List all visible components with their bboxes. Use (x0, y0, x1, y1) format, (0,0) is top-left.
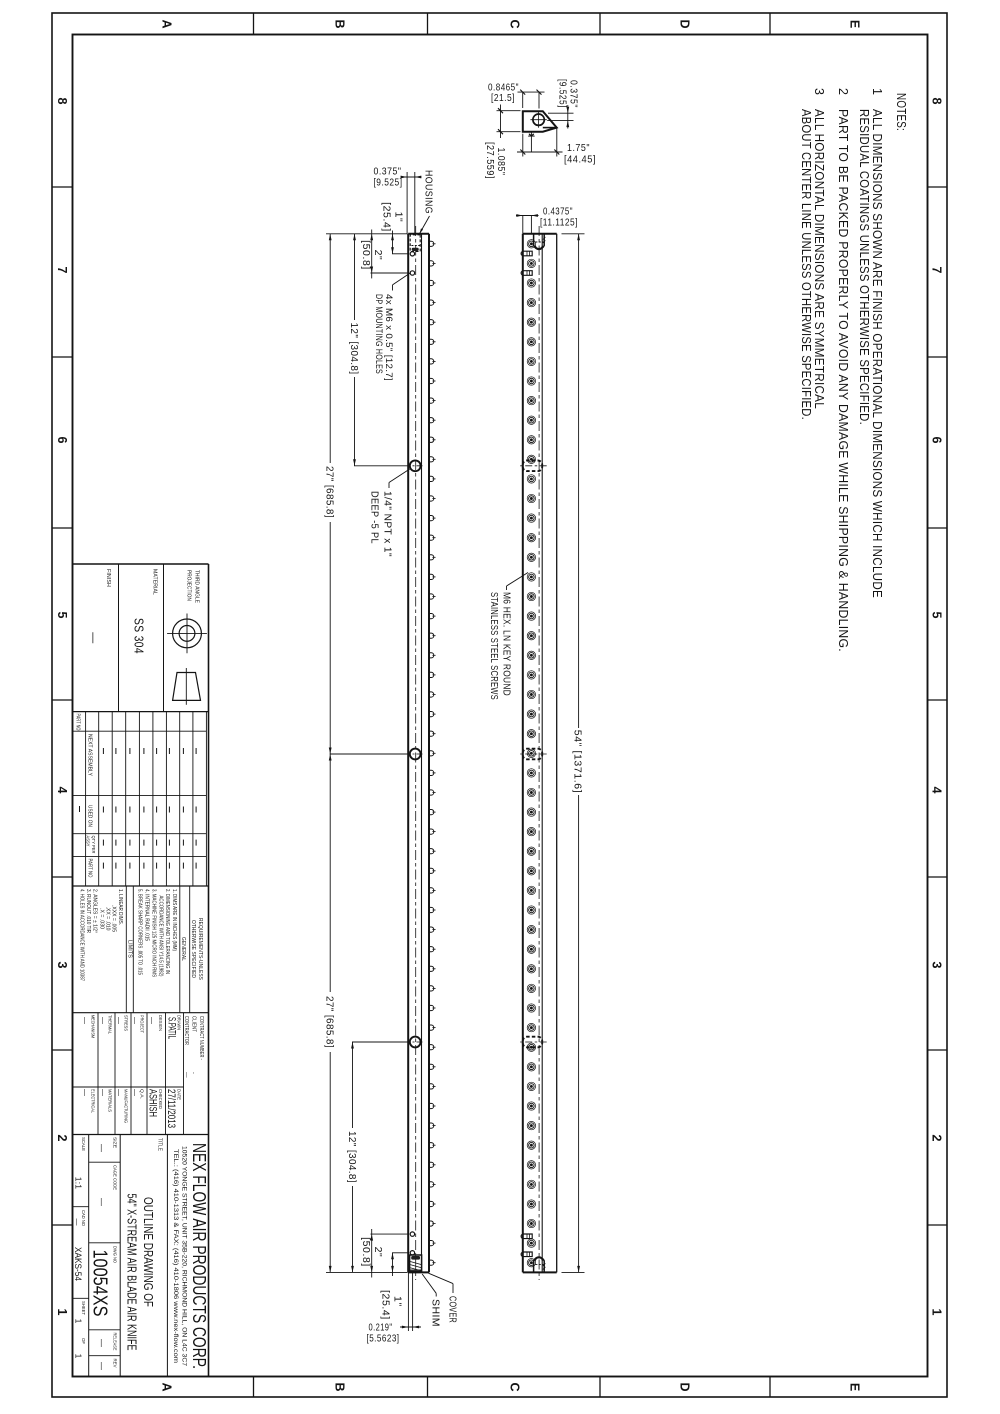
svg-text:—: — (73, 1219, 80, 1226)
svg-text:1: 1 (870, 88, 884, 95)
svg-text:1: 1 (74, 1354, 84, 1359)
svg-text:5: 5 (55, 612, 69, 619)
svg-text:—: — (81, 1017, 88, 1024)
svg-text:STRESS: STRESS (123, 1015, 129, 1031)
svg-text:TEL.: (416) 410-1313 & FAX: (4: TEL.: (416) 410-1313 & FAX: (416) 410-18… (172, 1149, 179, 1363)
svg-text:SHEET: SHEET (80, 1301, 86, 1315)
svg-text:[27.559]: [27.559] (484, 142, 496, 179)
svg-text:ALL HORIZONTAL DIMENSIONS ARE: ALL HORIZONTAL DIMENSIONS ARE SYMMETRICA… (812, 109, 826, 409)
svg-text:12" [304.8]: 12" [304.8] (346, 1131, 358, 1183)
svg-text:7: 7 (55, 267, 69, 274)
svg-text:12" [304.8]: 12" [304.8] (348, 323, 360, 375)
svg-text:MATERIALS: MATERIALS (107, 1089, 113, 1112)
svg-text:QTY PER: QTY PER (91, 836, 96, 854)
svg-text:HOUSING: HOUSING (423, 170, 434, 214)
svg-text:5: 5 (930, 612, 944, 619)
svg-text:SS 304: SS 304 (132, 618, 146, 654)
svg-text:—: — (81, 1089, 88, 1096)
svg-text:SHIM: SHIM (430, 1299, 441, 1327)
svg-text:[44.45]: [44.45] (564, 154, 596, 166)
svg-text:2: 2 (55, 1135, 69, 1142)
svg-text:—: — (115, 1089, 122, 1096)
svg-text:—: — (97, 1144, 106, 1152)
svg-text:2: 2 (836, 88, 850, 95)
svg-text:FINISH: FINISH (105, 569, 111, 587)
svg-text:2. DIMENSIONING AND TOLERANCIN: 2. DIMENSIONING AND TOLERANCING IN (164, 889, 170, 974)
svg-text:1:1: 1:1 (74, 1177, 84, 1189)
svg-text:2": 2" (372, 1247, 384, 1258)
svg-text:1/4" NPT x 1": 1/4" NPT x 1" (382, 491, 393, 557)
svg-text:ELECTRICAL: ELECTRICAL (90, 1089, 96, 1113)
svg-text:27" [685.8]: 27" [685.8] (324, 996, 336, 1048)
svg-text:A: A (160, 19, 174, 28)
svg-text:—: — (115, 1017, 122, 1024)
svg-text:DWG NO: DWG NO (112, 1246, 118, 1263)
svg-text:7: 7 (930, 267, 944, 274)
svg-text:GENERAL: GENERAL (180, 937, 186, 961)
svg-text:STAINLESS STEEL SCREWS: STAINLESS STEEL SCREWS (488, 592, 499, 700)
svg-text:ASHISH: ASHISH (147, 1089, 159, 1117)
svg-text:8: 8 (55, 98, 69, 105)
svg-text:ACCORDANCE WITH ANSI Y14.5 (19: ACCORDANCE WITH ANSI Y14.5 (1982) (158, 896, 164, 977)
svg-text:1": 1" (392, 1296, 404, 1307)
svg-text:1. LINEAR DIMS.: 1. LINEAR DIMS. (117, 889, 123, 925)
svg-text:REQUIREMENTS-UNLESS: REQUIREMENTS-UNLESS (197, 918, 203, 980)
svg-text:.X = .030: .X = .030 (99, 908, 105, 929)
svg-text:DEEP -5 PL: DEEP -5 PL (369, 491, 380, 544)
svg-text:2": 2" (372, 250, 384, 261)
svg-text:DESIGN: DESIGN (157, 1015, 163, 1031)
svg-text:D: D (678, 19, 692, 28)
svg-text:CONTRACT NUMBER -: CONTRACT NUMBER - (198, 1016, 204, 1060)
svg-text:1: 1 (55, 1309, 69, 1316)
svg-text:—: — (87, 632, 99, 643)
svg-text:PART NO: PART NO (87, 859, 93, 878)
svg-text:RESIDUAL COATINGS UNLESS OTHER: RESIDUAL COATINGS UNLESS OTHERWISE SPECI… (857, 109, 871, 425)
svg-text:[9.525]: [9.525] (557, 79, 569, 108)
svg-text:1. DIMS ARE IN INCHES (MM): 1. DIMS ARE IN INCHES (MM) (171, 889, 177, 951)
svg-text:4. INTERNAL RADII .015: 4. INTERNAL RADII .015 (144, 889, 150, 941)
svg-text:ASSY: ASSY (86, 836, 91, 847)
svg-text:—: — (99, 1089, 106, 1096)
svg-text:—: — (131, 1017, 138, 1024)
svg-text:PART NO: PART NO (75, 714, 81, 731)
svg-text:SIZE: SIZE (112, 1137, 118, 1148)
svg-text:[25.4]: [25.4] (381, 202, 393, 232)
svg-text:REV: REV (112, 1359, 118, 1369)
svg-text:3. RUNOUT .010 TIR: 3. RUNOUT .010 TIR (85, 889, 91, 933)
svg-text:—: — (131, 1089, 138, 1096)
svg-text:[11.1125]: [11.1125] (540, 217, 578, 229)
svg-text:3: 3 (812, 88, 826, 95)
svg-text:SCALE: SCALE (80, 1137, 86, 1151)
svg-text:RELEASE: RELEASE (112, 1333, 118, 1351)
svg-text:[50.8]: [50.8] (360, 1237, 372, 1267)
svg-text:A: A (160, 1382, 174, 1391)
svg-text:—: — (99, 1017, 106, 1024)
svg-text:54" X-STREAM AIR BLADE AIR KNI: 54" X-STREAM AIR BLADE AIR KNIFE (125, 1194, 140, 1351)
svg-text:—: — (97, 1198, 106, 1206)
svg-text:4: 4 (55, 787, 69, 794)
svg-text:—: — (97, 1339, 106, 1347)
svg-text:[9.525]: [9.525] (374, 177, 403, 189)
svg-text:[5.5623]: [5.5623] (367, 1333, 400, 1345)
svg-text:PROJECTION: PROJECTION (186, 570, 192, 601)
svg-text:8: 8 (930, 98, 944, 105)
svg-text:27/11/2013: 27/11/2013 (165, 1089, 177, 1128)
svg-text:DP MOUNTING HOLES: DP MOUNTING HOLES (373, 294, 384, 374)
svg-text:2. ANGLES = ± 1/2°: 2. ANGLES = ± 1/2° (92, 889, 98, 933)
svg-text:NOTES:: NOTES: (894, 93, 908, 131)
svg-text:TITLE: TITLE (157, 1138, 163, 1151)
svg-text:CONTRACTOR: CONTRACTOR (183, 1016, 189, 1045)
svg-text:3: 3 (930, 962, 944, 969)
svg-text:B: B (333, 1382, 347, 1391)
svg-text:NEXT ASSEMBLY: NEXT ASSEMBLY (87, 734, 93, 776)
svg-text:D: D (678, 1382, 692, 1391)
svg-text:6: 6 (930, 437, 944, 444)
svg-text:C: C (508, 19, 522, 28)
svg-text:[25.4]: [25.4] (380, 1290, 392, 1320)
svg-text:3. MACHINE FINISH 125 MICRO IN: 3. MACHINE FINISH 125 MICRO INCH RMS (151, 889, 157, 977)
svg-text:—: — (97, 1362, 106, 1370)
svg-text:6: 6 (55, 437, 69, 444)
svg-text:THIRD ANGLE: THIRD ANGLE (194, 570, 200, 603)
svg-text:4: 4 (930, 787, 944, 794)
svg-text:S.PATIL: S.PATIL (166, 1017, 178, 1039)
svg-text:ALL DIMENSIONS SHOWN ARE FINIS: ALL DIMENSIONS SHOWN ARE FINISH OPERATIO… (870, 109, 884, 598)
svg-text:THERMAL: THERMAL (107, 1015, 113, 1034)
svg-text:—: — (148, 1017, 155, 1024)
svg-text:OTHERWISE SPECIFIED: OTHERWISE SPECIFIED (190, 920, 196, 978)
svg-text:5. BREAK SHARP CORNERS .005 TO: 5. BREAK SHARP CORNERS .005 TO .015 (137, 889, 143, 975)
svg-text:C: C (508, 1382, 522, 1391)
svg-text:USED ON: USED ON (87, 805, 93, 827)
svg-text:ABOUT CENTER LINE UNLESS OTHER: ABOUT CENTER LINE UNLESS OTHERWISE SPECI… (799, 109, 813, 420)
svg-text:M6 HEX. LN KEY ROUND: M6 HEX. LN KEY ROUND (501, 592, 512, 696)
svg-text:PROJECT: PROJECT (139, 1015, 145, 1033)
svg-text:[50.8]: [50.8] (360, 240, 372, 270)
svg-text:MECHANISM: MECHANISM (90, 1015, 96, 1038)
svg-text:XAKS-54: XAKS-54 (72, 1247, 83, 1281)
svg-text:27" [685.8]: 27" [685.8] (324, 466, 336, 518)
svg-text:OF: OF (80, 1338, 86, 1344)
svg-text:Q.A.: Q.A. (139, 1089, 145, 1099)
svg-text:—: — (183, 1072, 189, 1078)
svg-text:1.75": 1.75" (567, 142, 590, 154)
svg-text:NEX FLOW AIR PRODUCTS CORP.: NEX FLOW AIR PRODUCTS CORP. (189, 1143, 210, 1369)
svg-text:LIMITS: LIMITS (127, 940, 133, 958)
svg-text:-: - (191, 1072, 197, 1074)
svg-text:10520 YONGE STREET, UNIT 35B-2: 10520 YONGE STREET, UNIT 35B-220, RICHMO… (181, 1146, 188, 1366)
svg-text:1: 1 (930, 1309, 944, 1316)
svg-text:1: 1 (74, 1319, 84, 1324)
svg-text:CAGE CODE: CAGE CODE (112, 1165, 118, 1190)
svg-text:COVER: COVER (447, 1296, 458, 1323)
svg-text:10054XS: 10054XS (89, 1250, 111, 1317)
svg-text:OUTLINE DRAWING OF: OUTLINE DRAWING OF (141, 1197, 156, 1307)
svg-text:MANUFACTURING: MANUFACTURING (123, 1089, 129, 1123)
svg-text:E: E (848, 20, 862, 28)
svg-text:PART TO BE PACKED PROPERLY TO: PART TO BE PACKED PROPERLY TO AVOID ANY … (836, 109, 850, 652)
svg-text:2: 2 (930, 1135, 944, 1142)
svg-text:3: 3 (55, 962, 69, 969)
svg-text:1": 1" (393, 212, 405, 223)
svg-text:54" [1371.6]: 54" [1371.6] (572, 730, 584, 793)
svg-text:[21.5]: [21.5] (491, 92, 515, 104)
svg-text:4. HOLES IN ACCORDANCE WITH AN: 4. HOLES IN ACCORDANCE WITH AND 10387 (79, 889, 85, 981)
svg-text:B: B (333, 19, 347, 28)
svg-text:CLIENT: CLIENT (191, 1016, 197, 1032)
svg-text:MATERIAL: MATERIAL (152, 569, 158, 596)
svg-text:E: E (848, 1383, 862, 1391)
